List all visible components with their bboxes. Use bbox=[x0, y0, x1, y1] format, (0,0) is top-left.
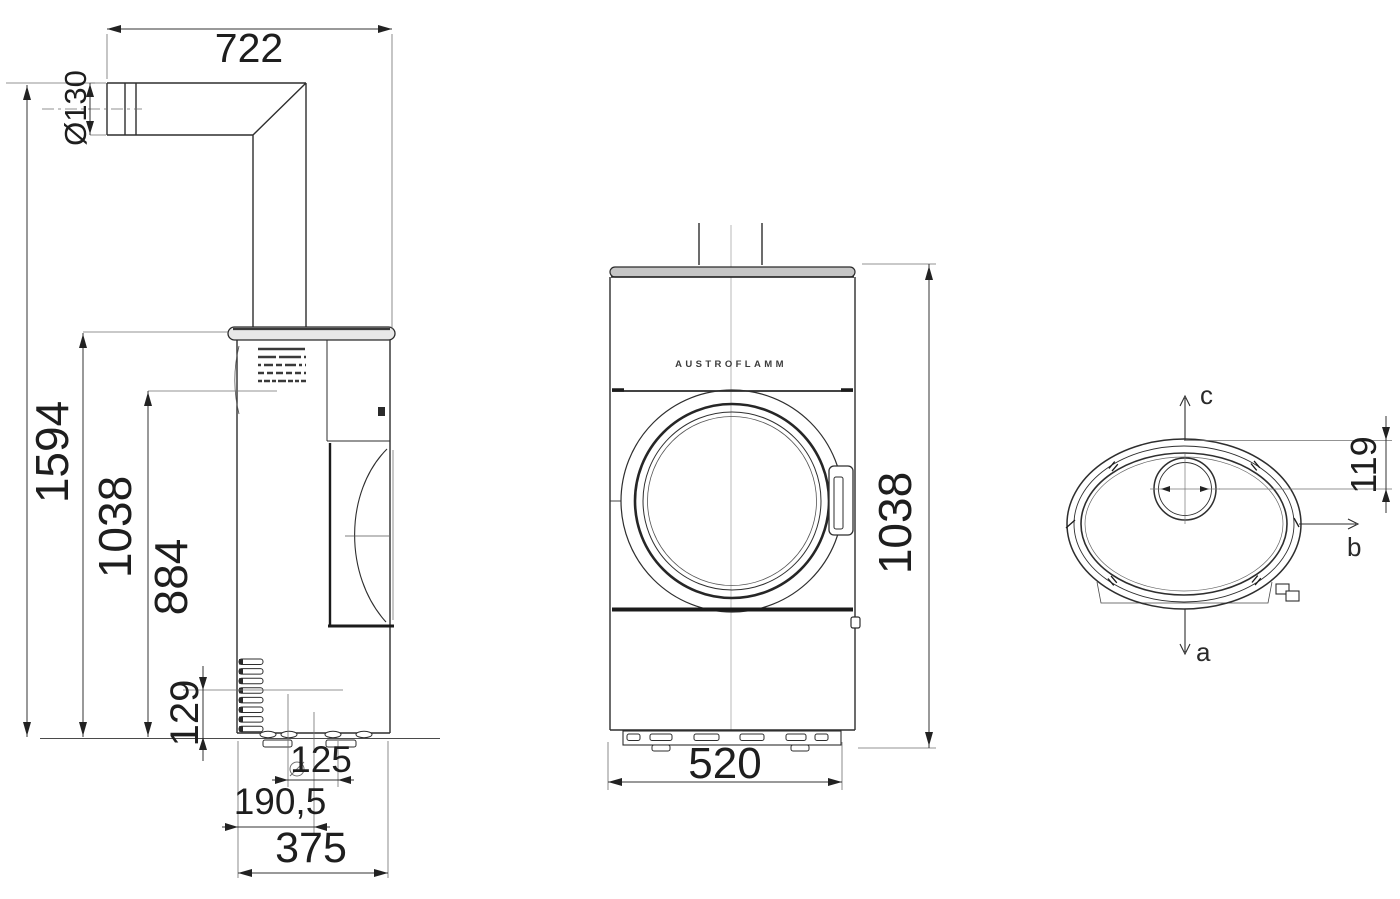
top-flue-collar bbox=[1150, 454, 1220, 524]
technical-drawing: 722 Ø130 1594 1038 884 129 125 190,5 375… bbox=[0, 0, 1400, 899]
axis-label-c: c bbox=[1200, 380, 1213, 410]
top-base-plate bbox=[1097, 582, 1272, 603]
dim-label-722: 722 bbox=[215, 25, 283, 71]
front-side-latch bbox=[851, 617, 860, 628]
dim-label-d130: Ø130 bbox=[58, 70, 93, 146]
dim-label-129: 129 bbox=[163, 680, 207, 747]
dim-label-190-5: 190,5 bbox=[234, 781, 327, 822]
side-upper-vents bbox=[258, 349, 306, 381]
front-body-outline bbox=[610, 277, 855, 730]
top-oval-rim bbox=[1067, 439, 1301, 609]
front-view: AUSTROFLAMM bbox=[608, 223, 936, 790]
front-door-rings bbox=[621, 390, 843, 612]
top-view: c a b 119 bbox=[1066, 380, 1392, 667]
top-latch bbox=[1276, 584, 1299, 601]
side-door-latch bbox=[378, 407, 385, 416]
axis-label-a: a bbox=[1196, 637, 1211, 667]
dim-label-119: 119 bbox=[1343, 436, 1384, 493]
dim-label-1594: 1594 bbox=[26, 401, 78, 503]
flue-pipe-outline bbox=[107, 83, 306, 331]
dim-label-375: 375 bbox=[275, 824, 347, 872]
front-top-plate bbox=[610, 267, 855, 277]
dim-label-1038-front: 1038 bbox=[869, 472, 921, 574]
brand-wordmark: AUSTROFLAMM bbox=[675, 359, 787, 370]
dim-label-1038-side: 1038 bbox=[89, 476, 141, 578]
dim-label-125: 125 bbox=[290, 739, 352, 780]
front-flue-pipe bbox=[699, 223, 762, 265]
side-top-plate bbox=[228, 327, 395, 340]
side-lower-louvers bbox=[239, 659, 263, 732]
axis-label-b: b bbox=[1347, 532, 1361, 562]
dim-label-884: 884 bbox=[145, 539, 197, 616]
side-view: 722 Ø130 1594 1038 884 129 125 190,5 375 bbox=[6, 25, 440, 878]
top-axes bbox=[1180, 396, 1358, 654]
dim-label-520: 520 bbox=[688, 739, 761, 788]
front-door-handle bbox=[829, 466, 853, 535]
